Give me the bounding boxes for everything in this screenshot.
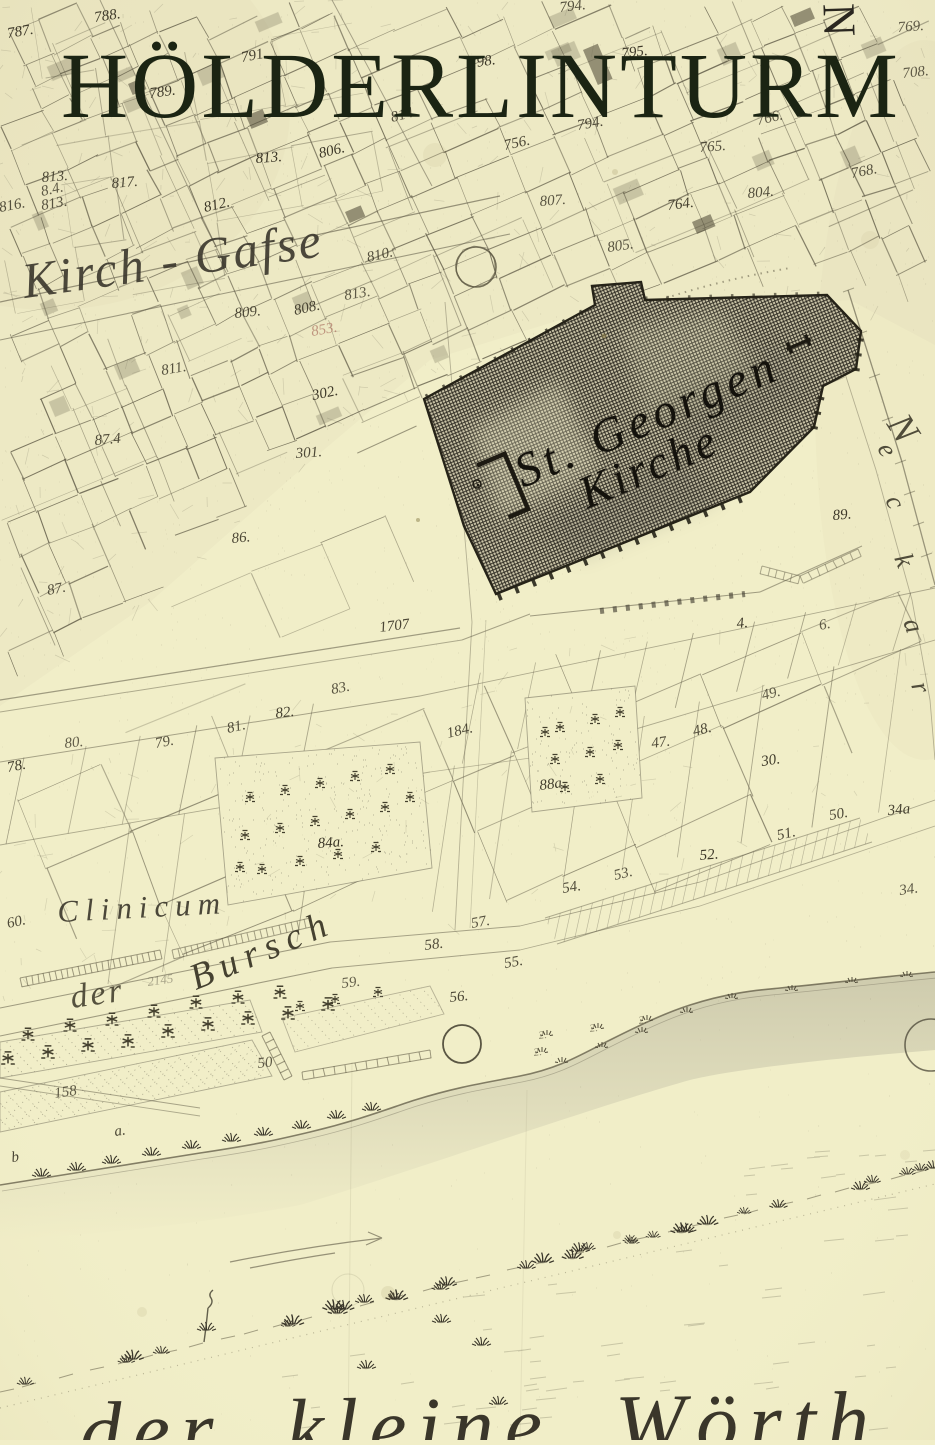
svg-text:59.: 59. [341,974,362,992]
svg-text:813.: 813. [255,149,282,167]
svg-text:47.: 47. [650,734,671,752]
svg-text:52.: 52. [699,846,719,864]
svg-text:817.: 817. [111,174,139,192]
svg-text:78.: 78. [6,757,27,776]
svg-text:89.: 89. [832,506,852,524]
svg-text:2.: 2. [589,1022,599,1035]
svg-text:82.: 82. [275,704,295,722]
svg-text:50.: 50. [828,805,849,824]
svg-text:708.: 708. [902,63,930,82]
svg-text:a.: a. [113,1123,126,1140]
svg-text:794.: 794. [559,0,587,16]
svg-text:769.: 769. [897,18,924,36]
svg-text:2.: 2. [538,1029,548,1042]
svg-text:55.: 55. [503,953,524,972]
svg-text:50: 50 [257,1054,274,1072]
svg-text:765.: 765. [699,138,726,156]
svg-text:HÖLDERLINTURM: HÖLDERLINTURM [61,35,901,138]
svg-text:84a.: 84a. [317,834,344,852]
svg-text:87.4: 87.4 [94,431,122,449]
svg-text:30.: 30. [759,751,781,770]
svg-text:809.: 809. [234,303,262,322]
svg-text:804.: 804. [747,184,775,202]
svg-text:4.: 4. [736,615,749,632]
svg-text:der kleine Wörth: der kleine Wörth [79,1375,881,1440]
svg-text:N: N [813,2,865,37]
svg-text:2.: 2. [638,1014,648,1027]
svg-text:58.: 58. [423,936,444,954]
svg-text:56.: 56. [449,988,469,1006]
svg-text:34a: 34a [886,801,911,819]
svg-text:764.: 764. [667,195,695,214]
svg-text:2.: 2. [533,1046,543,1059]
svg-text:158: 158 [53,1083,78,1102]
svg-text:57.: 57. [470,913,491,932]
svg-text:der: der [68,972,127,1016]
svg-text:86.: 86. [231,529,251,547]
svg-text:83.: 83. [330,679,351,698]
svg-text:807.: 807. [539,192,566,210]
svg-text:301.: 301. [294,444,322,462]
svg-text:80.: 80. [64,734,84,752]
svg-text:88a.: 88a. [539,775,567,794]
svg-text:34.: 34. [897,880,919,899]
svg-text:54.: 54. [561,878,582,897]
